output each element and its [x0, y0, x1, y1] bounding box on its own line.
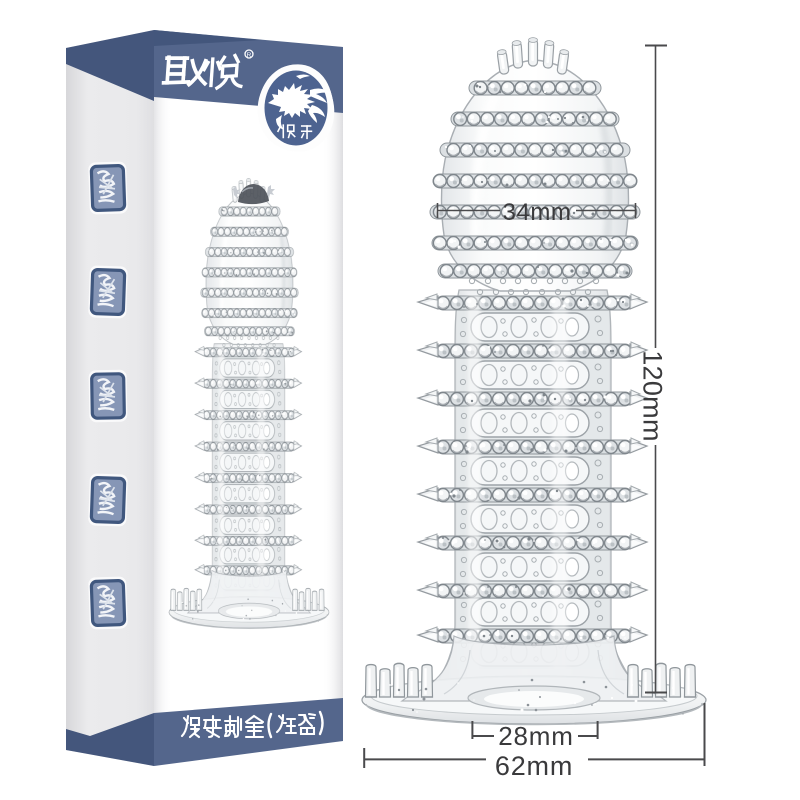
svg-text:62mm: 62mm [495, 751, 573, 781]
svg-text:120mm: 120mm [638, 350, 668, 442]
svg-text:34mm: 34mm [503, 199, 572, 226]
svg-text:28mm: 28mm [498, 721, 573, 751]
svg-text:R: R [247, 52, 252, 59]
